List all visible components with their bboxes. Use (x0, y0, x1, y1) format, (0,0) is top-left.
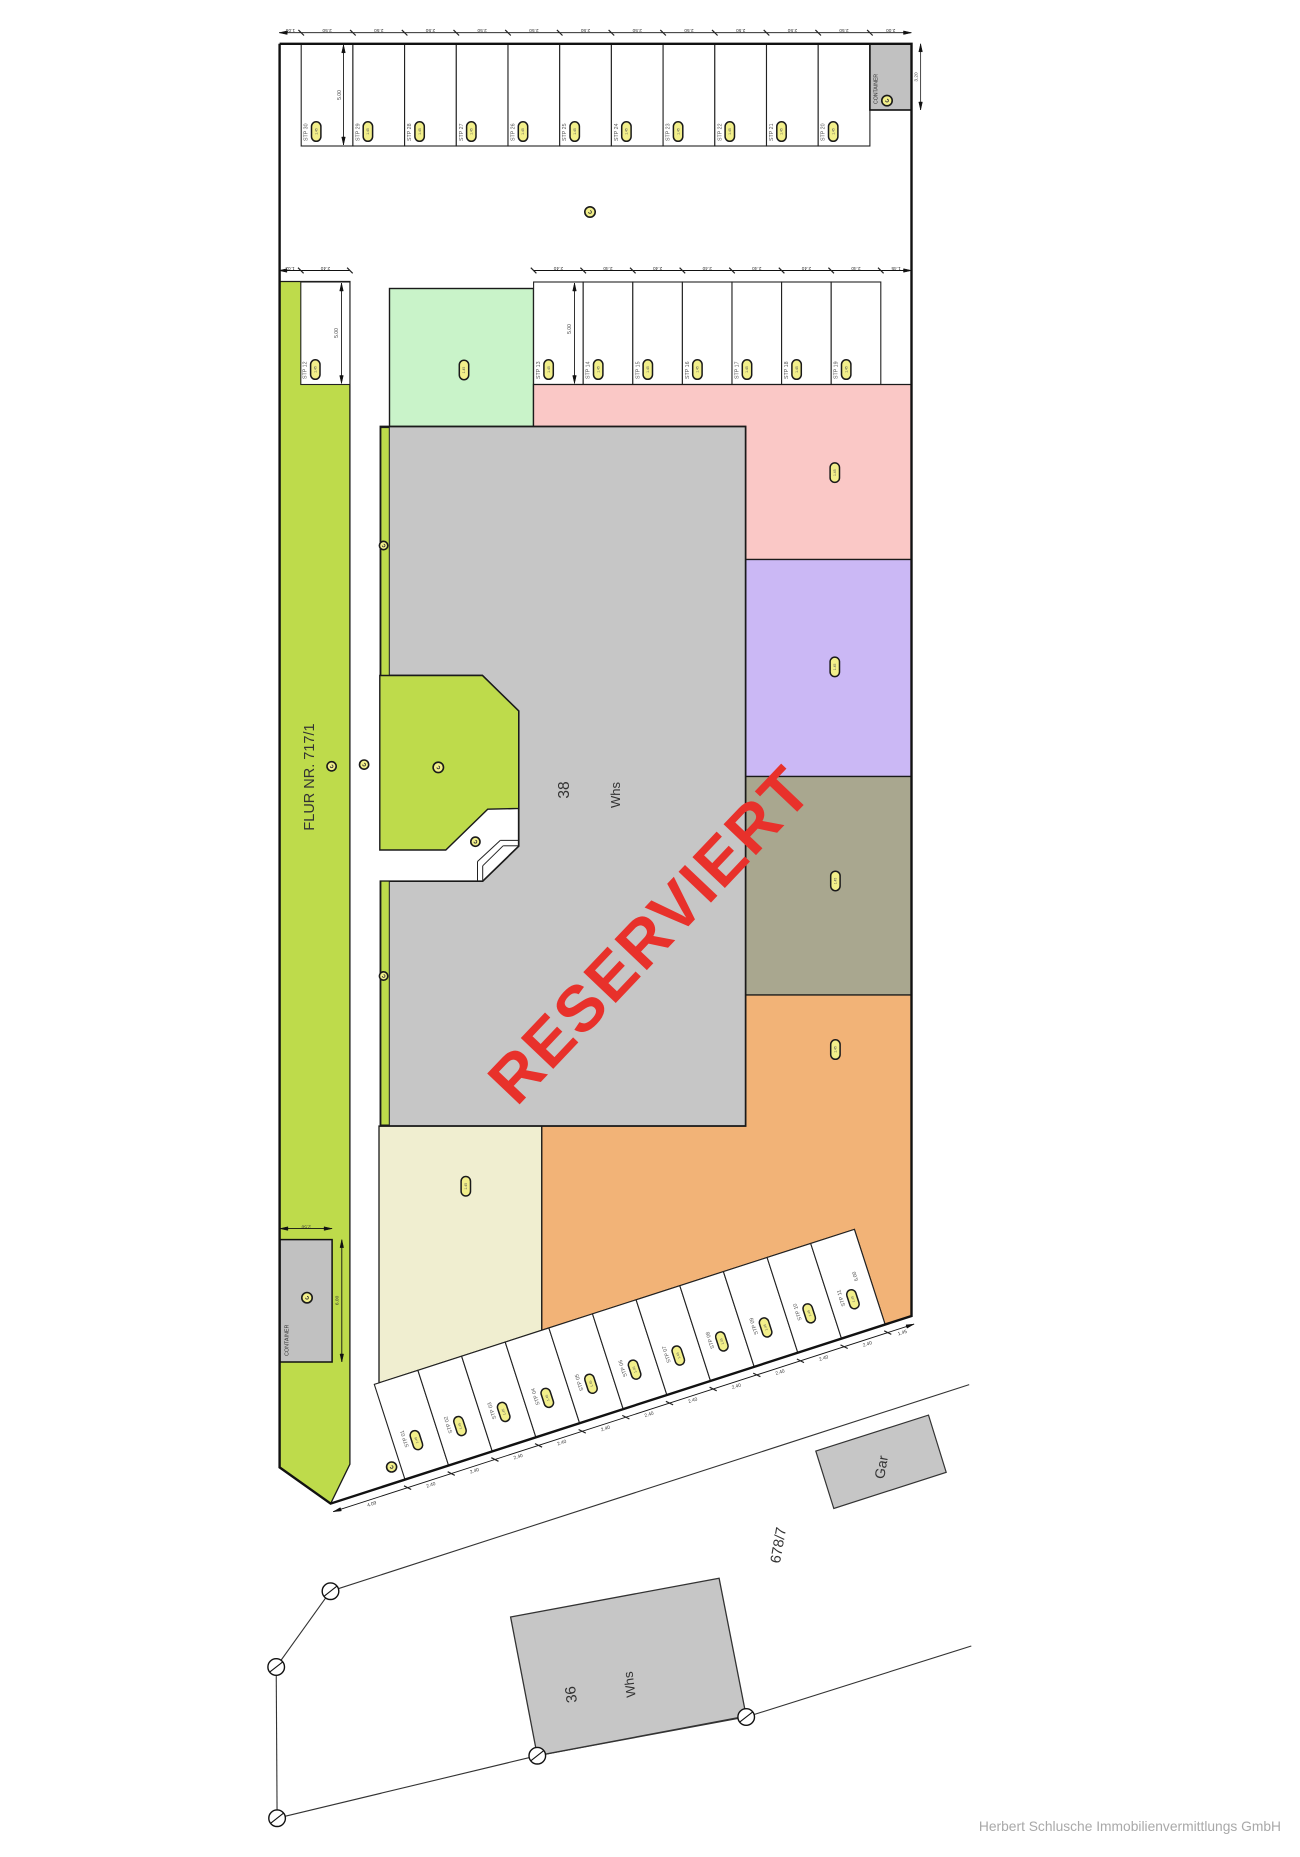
svg-text:FLUR NR. 717/1: FLUR NR. 717/1 (302, 723, 318, 830)
svg-text:STP 25: STP 25 (562, 123, 568, 141)
svg-text:STP 30: STP 30 (304, 123, 310, 141)
svg-text:1.45: 1.45 (314, 128, 318, 135)
svg-text:4.09: 4.09 (367, 1500, 378, 1509)
svg-text:Herbert Schlusche Immobilienve: Herbert Schlusche Immobilienvermittlungs… (979, 1819, 1281, 1834)
svg-text:STP 22: STP 22 (717, 123, 723, 141)
svg-text:1.45: 1.45 (844, 366, 848, 373)
svg-text:5.00: 5.00 (337, 90, 343, 100)
svg-text:2.50: 2.50 (581, 27, 591, 33)
svg-text:2.40: 2.40 (801, 265, 811, 271)
svg-text:STP 19: STP 19 (834, 361, 840, 379)
svg-text:STP 15: STP 15 (635, 361, 641, 379)
svg-text:1.45: 1.45 (831, 128, 835, 135)
svg-text:2.50: 2.50 (425, 27, 435, 33)
svg-text:2.40: 2.40 (752, 265, 762, 271)
svg-text:CONTAINER: CONTAINER (285, 1325, 291, 1356)
svg-text:STP 23: STP 23 (666, 123, 672, 141)
svg-text:2.40: 2.40 (426, 1481, 437, 1490)
svg-text:36: 36 (562, 1685, 581, 1704)
svg-text:STP 16: STP 16 (685, 361, 691, 379)
svg-text:Whs: Whs (620, 1670, 638, 1698)
svg-text:1.45: 1.45 (745, 366, 749, 373)
svg-text:2.40: 2.40 (557, 1439, 568, 1448)
svg-text:2.40: 2.40 (818, 1354, 829, 1363)
svg-text:2.40: 2.40 (775, 1368, 786, 1377)
svg-text:2.50: 2.50 (684, 27, 694, 33)
svg-text:1.45: 1.45 (891, 265, 901, 271)
svg-text:2.40: 2.40 (553, 265, 563, 271)
svg-text:1.45: 1.45 (646, 366, 650, 373)
svg-text:1.45: 1.45 (521, 128, 525, 135)
svg-text:STP 14: STP 14 (586, 361, 592, 379)
svg-text:1.45: 1.45 (833, 663, 837, 670)
svg-text:1.45: 1.45 (366, 128, 370, 135)
svg-text:38: 38 (556, 781, 573, 798)
svg-text:1.45: 1.45 (596, 366, 600, 373)
svg-text:2.40: 2.40 (688, 1396, 699, 1405)
svg-text:1.45: 1.45 (728, 128, 732, 135)
svg-text:2.00: 2.00 (886, 27, 896, 33)
svg-text:STP 12: STP 12 (303, 361, 309, 379)
svg-text:2.50: 2.50 (839, 27, 849, 33)
svg-text:1.45: 1.45 (834, 1046, 838, 1053)
svg-text:STP 20: STP 20 (821, 123, 827, 141)
svg-text:1.45: 1.45 (780, 128, 784, 135)
svg-text:STP 13: STP 13 (536, 361, 542, 379)
svg-text:2.40: 2.40 (702, 265, 712, 271)
svg-text:1.45: 1.45 (897, 1329, 908, 1338)
svg-text:1.45: 1.45 (314, 366, 318, 373)
svg-text:CONTAINER: CONTAINER (874, 74, 880, 104)
svg-text:678/7: 678/7 (768, 1526, 790, 1565)
svg-text:2.40: 2.40 (320, 265, 330, 271)
svg-text:STP 21: STP 21 (769, 123, 775, 141)
svg-text:1.45: 1.45 (470, 128, 474, 135)
svg-text:Whs: Whs (608, 782, 623, 809)
svg-text:1.05: 1.05 (285, 27, 295, 33)
svg-text:STP 18: STP 18 (784, 361, 790, 379)
svg-text:STP 28: STP 28 (407, 123, 413, 141)
svg-text:1.02: 1.02 (285, 265, 295, 271)
svg-text:3.20: 3.20 (913, 72, 919, 82)
svg-text:2.40: 2.40 (731, 1382, 742, 1391)
svg-text:2.50: 2.50 (787, 27, 797, 33)
svg-text:2.50: 2.50 (736, 27, 746, 33)
svg-text:2.50: 2.50 (301, 1224, 311, 1230)
svg-text:2.50: 2.50 (322, 27, 332, 33)
svg-text:1.45: 1.45 (625, 128, 629, 135)
svg-text:5.00: 5.00 (334, 328, 340, 338)
svg-text:1.45: 1.45 (573, 128, 577, 135)
svg-text:2.50: 2.50 (529, 27, 539, 33)
svg-text:1.45: 1.45 (795, 366, 799, 373)
svg-text:2.40: 2.40 (653, 265, 663, 271)
svg-text:STP 29: STP 29 (355, 123, 361, 141)
svg-text:1.45: 1.45 (676, 128, 680, 135)
svg-text:2.50: 2.50 (477, 27, 487, 33)
svg-text:STP 26: STP 26 (511, 123, 517, 141)
svg-text:2.40: 2.40 (600, 1425, 611, 1434)
svg-text:2.40: 2.40 (603, 265, 613, 271)
svg-text:1.45: 1.45 (464, 1183, 468, 1190)
svg-text:1.45: 1.45 (547, 366, 551, 373)
svg-text:1.45: 1.45 (418, 128, 422, 135)
svg-text:STP 17: STP 17 (735, 361, 741, 379)
svg-text:2.40: 2.40 (862, 1340, 873, 1349)
svg-text:2.50: 2.50 (374, 27, 384, 33)
svg-text:2.40: 2.40 (851, 265, 861, 271)
svg-text:STP 27: STP 27 (459, 123, 465, 141)
svg-text:2.40: 2.40 (513, 1453, 524, 1462)
svg-text:1.45: 1.45 (834, 878, 838, 885)
svg-text:2.40: 2.40 (644, 1410, 655, 1419)
svg-text:2.40: 2.40 (469, 1467, 480, 1476)
svg-text:STP 24: STP 24 (614, 123, 620, 141)
svg-text:1.45: 1.45 (462, 367, 466, 374)
svg-text:1.45: 1.45 (696, 366, 700, 373)
svg-text:1.45: 1.45 (833, 469, 837, 476)
svg-text:6.00: 6.00 (335, 1295, 341, 1305)
svg-text:5.00: 5.00 (567, 324, 573, 334)
svg-text:2.50: 2.50 (632, 27, 642, 33)
